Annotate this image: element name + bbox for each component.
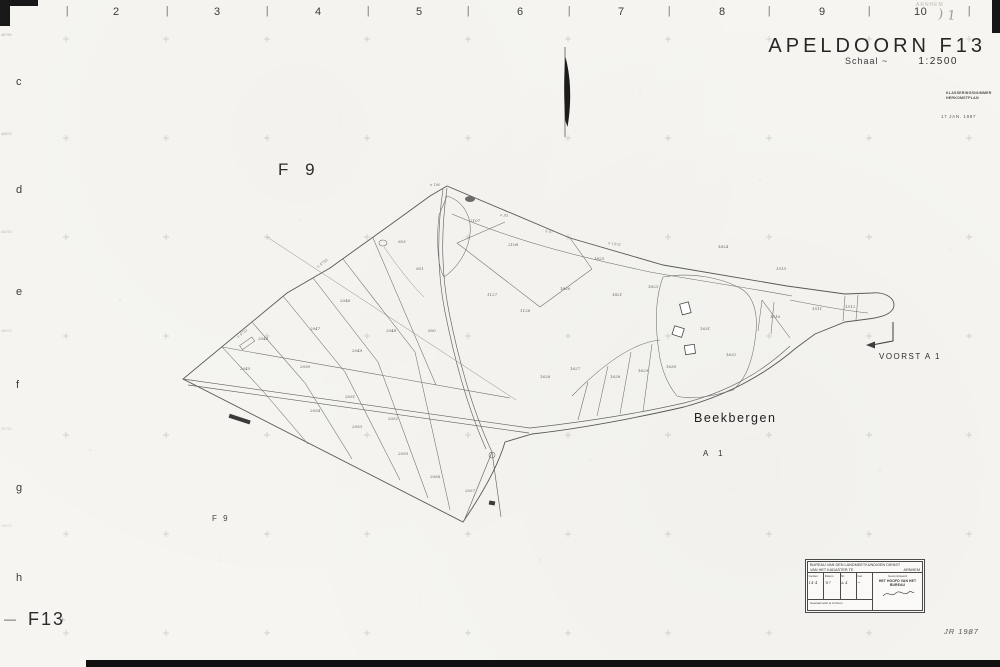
narrow-parcel-symbol [240, 337, 255, 350]
stamp-column-header: Datum [825, 574, 839, 578]
stamp-column-value: 14-4 [809, 580, 823, 585]
parcel-line [457, 243, 540, 307]
grid-cross [966, 432, 972, 438]
road-number: 5 47 [545, 229, 554, 234]
pond-symbol [379, 240, 387, 246]
edge-coordinate: 45500 [1, 524, 12, 528]
grid-cross [665, 135, 671, 141]
grid-cross [565, 432, 571, 438]
parcel-number: 2044 [257, 336, 269, 341]
edge-coordinate: 46750 [1, 33, 12, 37]
grid-cross [465, 333, 471, 339]
parcel-number: 1820 [560, 286, 571, 291]
parcel-number: 1631 [700, 326, 710, 331]
stamp-body: Gezien14-4Datum'87Nr.A 4Get.~ Gewaarmerk… [808, 573, 922, 610]
parcel-number: 2049 [351, 348, 363, 353]
parcel-number: 1628 [610, 374, 621, 379]
grid-cross [465, 531, 471, 537]
parcel-number: 2046 [339, 298, 351, 303]
parcel-number: 1824 [718, 244, 729, 249]
parcel-number: 1515 [776, 266, 787, 271]
grid-cross [163, 135, 169, 141]
classification-stamp: KLASSERINGSNUMMER HERKOMSTPLAN [946, 91, 996, 101]
pencil-annotation: ) 1 [937, 7, 956, 24]
parcel-number: 2055 [397, 451, 409, 456]
stamp-right-title: HET HOOFD VAN HET BUREAU [874, 579, 921, 587]
signature-squiggle [880, 588, 916, 600]
grid-cross [866, 135, 872, 141]
parcel-number: 1127 [487, 292, 498, 297]
grid-cross-layer [63, 36, 972, 636]
grid-cross [565, 531, 571, 537]
grid-cross [465, 36, 471, 42]
edge-coordinate: 46000 [1, 329, 12, 333]
stamp-bottom-note: Gewaarmerkt te Arnhem [808, 599, 872, 610]
grid-letter: f [16, 379, 19, 391]
grid-tick: | [166, 4, 168, 17]
grid-cross [966, 333, 972, 339]
grid-cross [63, 135, 69, 141]
grid-letter: g [16, 482, 22, 494]
panhandle-line [758, 300, 762, 331]
grid-cross [63, 333, 69, 339]
buildings [672, 302, 695, 355]
parcel-number: 953 [398, 239, 406, 244]
parcel-number: 950 [428, 328, 436, 333]
parcel-number: 1511 [812, 306, 822, 311]
parcel-number: 1821 [612, 292, 622, 297]
grid-cross [866, 333, 872, 339]
parcel-line [570, 238, 592, 269]
parcel-number: 2107 [469, 218, 481, 223]
wedge-line [262, 390, 308, 444]
stamp-column-value: ~ [857, 580, 871, 585]
grid-cross [63, 234, 69, 240]
road-number: n 180 [430, 183, 441, 187]
parcel-number: 1510 [770, 314, 781, 319]
stamp-header-line2: VAN HET KADASTER TE [810, 568, 853, 573]
panhandle-line [762, 300, 790, 338]
grid-tick: | [968, 4, 970, 17]
enclosure-outline [656, 275, 756, 398]
stamp-right-header: Gecontroleerd [874, 574, 921, 578]
grid-cross [565, 135, 571, 141]
central-road-line-2 [439, 189, 486, 449]
fan-line [643, 344, 652, 412]
grid-cross [665, 531, 671, 537]
grid-cross [766, 531, 772, 537]
fan-line [597, 366, 608, 416]
building-outline [684, 344, 695, 354]
edge-coordinate: 46250 [1, 230, 12, 234]
parcel-number: 951 [416, 266, 424, 271]
grid-cross [766, 234, 772, 240]
grid-number: 6 [517, 6, 524, 18]
stamp-column: Datum'87 [824, 573, 840, 599]
grid-cross [465, 432, 471, 438]
strip-line [343, 259, 415, 352]
grid-cross [63, 531, 69, 537]
grid-cross [63, 630, 69, 636]
grid-cross [63, 432, 69, 438]
grid-tick: | [568, 4, 570, 17]
strip-line [373, 238, 436, 385]
stamp-column: Get.~ [857, 573, 872, 599]
grid-number: 2 [113, 6, 120, 18]
neighbour-label-voorst: VOORST A 1 [879, 352, 941, 361]
parcel-number: 2053 [351, 424, 363, 429]
place-label-beekbergen: Beekbergen [694, 411, 776, 425]
parcel-number: 2051 [344, 394, 355, 399]
grid-cross [665, 333, 671, 339]
parcel-number: 1512 [845, 304, 856, 309]
grid-cross [364, 135, 370, 141]
grid-number: 9 [819, 6, 826, 18]
grid-cross [665, 432, 671, 438]
teardrop-tail [384, 247, 424, 297]
grid-cross [766, 432, 772, 438]
building-outline [672, 326, 684, 338]
sheet-code-cross: + [60, 615, 65, 625]
grid-cross [264, 135, 270, 141]
adjacent-sheet-label-small: F 9 [212, 514, 230, 523]
stamp-header: BUREAU VAN DEN LANDMEETKUNDIGEN DIENST V… [808, 562, 922, 573]
map-sheet: 9539519501127112618201821182318252107210… [0, 0, 1000, 667]
date-stamp: 17 JAN. 1987 [941, 114, 976, 119]
parcel-number: 2056 [429, 474, 441, 479]
grid-cross [465, 135, 471, 141]
stamp-column-header: Gezien [809, 574, 823, 578]
parcel-number: 1626 [540, 374, 551, 379]
parcel-number: 1825 [594, 256, 605, 261]
strip-line [313, 278, 378, 362]
parcel-number: 1126 [520, 308, 531, 313]
edge-coordinate: 45750 [1, 427, 12, 431]
grid-number: 8 [719, 6, 726, 18]
parcel-number: 1630 [666, 364, 677, 369]
north-arrow-icon [564, 47, 570, 137]
grid-letter: d [16, 184, 22, 196]
grid-cross [866, 531, 872, 537]
grid-number: 10 [914, 6, 927, 18]
grid-number: 4 [315, 6, 322, 18]
grid-cross [665, 36, 671, 42]
grid-number: 5 [416, 6, 423, 18]
sheet-code-dash: — [4, 612, 16, 626]
parcel-number: 1629 [638, 368, 649, 373]
stamp-column: Gezien14-4 [808, 573, 824, 599]
stamp-right: Gecontroleerd HET HOOFD VAN HET BUREAU [873, 573, 922, 610]
edge-coordinate: 46500 [1, 132, 12, 136]
grid-cross [766, 135, 772, 141]
grid-tick: | [467, 4, 469, 17]
grid-cross [364, 36, 370, 42]
stamp-column-value: '87 [825, 580, 839, 585]
road-label-a1: A 1 [703, 449, 727, 458]
grid-cross [966, 234, 972, 240]
grid-cross [565, 333, 571, 339]
upper-road-line [452, 214, 792, 296]
scale-label: Schaal ~ [845, 56, 888, 67]
stamp-left: Gezien14-4Datum'87Nr.A 4Get.~ Gewaarmerk… [808, 573, 873, 610]
grid-cross [364, 333, 370, 339]
grid-cross [163, 630, 169, 636]
parcel-number: 2045 [239, 366, 251, 371]
monument-symbol [465, 196, 475, 202]
central-road-branch [492, 452, 501, 517]
parcel-number: 2054 [309, 408, 321, 413]
road-number-layer: n 1473n 93n 4730n 4731n 1805 47 [236, 183, 621, 339]
grid-tick: | [66, 4, 68, 17]
grid-tick: | [868, 4, 870, 17]
grid-tick: | [768, 4, 770, 17]
grid-cross [665, 630, 671, 636]
parcel-number: 2057 [464, 488, 476, 493]
voorst-arrow-icon [866, 322, 893, 349]
grid-cross [264, 630, 270, 636]
grid-cross [866, 630, 872, 636]
grid-tick: | [367, 4, 369, 17]
parcel-number: 1632 [726, 352, 737, 357]
cadastre-stamp-inner: BUREAU VAN DEN LANDMEETKUNDIGEN DIENST V… [807, 561, 923, 611]
parcel-number: 2108 [507, 242, 519, 247]
grid-cross [63, 36, 69, 42]
stamp-column-header: Get. [857, 574, 871, 578]
small-dark-mark [489, 501, 496, 506]
grid-tick: | [668, 4, 670, 17]
road-number: n 93 [500, 213, 509, 218]
parcel-number: 2052 [387, 416, 399, 421]
grid-cross [163, 36, 169, 42]
parcel-line [457, 222, 505, 243]
grid-letter: e [16, 286, 22, 298]
sheet-title: APELDOORN F13 [768, 35, 986, 58]
grid-cross [966, 531, 972, 537]
fan-line [620, 352, 631, 414]
grid-cross [565, 36, 571, 42]
cadastre-stamp-box: BUREAU VAN DEN LANDMEETKUNDIGEN DIENST V… [805, 559, 925, 613]
road-number: n 1473 [608, 241, 622, 247]
year-note: JR 1987 [944, 627, 979, 636]
grid-number: 7 [618, 6, 625, 18]
parcel-number: 2047 [309, 326, 321, 331]
diagonal-survey-line [267, 237, 516, 400]
panhandle-line [856, 295, 858, 320]
grid-letter: c [16, 76, 22, 88]
grid-cross [264, 432, 270, 438]
scale-row: Schaal ~ 1:2500 [845, 56, 958, 67]
grid-number: 3 [214, 6, 221, 18]
road-number: n 4730 [316, 258, 329, 269]
parcel-number: 1823 [648, 284, 659, 289]
grid-tick: | [266, 4, 268, 17]
map-lines [183, 186, 894, 522]
grid-cross [866, 432, 872, 438]
building-outline [680, 302, 692, 315]
stamp-column-header: Nr. [841, 574, 855, 578]
grid-cross [364, 432, 370, 438]
grid-cross [163, 531, 169, 537]
grid-letter: h [16, 572, 22, 584]
grid-cross [163, 234, 169, 240]
panhandle-axis [790, 300, 868, 313]
grid-cross [364, 531, 370, 537]
map-outer-boundary [183, 186, 894, 522]
grid-cross [766, 630, 772, 636]
strip-line [252, 322, 305, 383]
scan-dust [89, 89, 950, 600]
stamp-column-value: A 4 [841, 580, 855, 585]
grid-cross [866, 234, 872, 240]
grid-cross [163, 432, 169, 438]
stamp-columns: Gezien14-4Datum'87Nr.A 4Get.~ [808, 573, 872, 599]
wedge-line [415, 352, 450, 510]
classification-line2: HERKOMSTPLAN [946, 96, 996, 101]
grid-cross [565, 630, 571, 636]
grid-cross [966, 135, 972, 141]
parcel-number: 2050 [299, 364, 311, 369]
parcel-number: 1627 [570, 366, 581, 371]
central-road-line [443, 188, 492, 521]
stamp-column: Nr.A 4 [841, 573, 857, 599]
grid-cross [364, 630, 370, 636]
parcel-number: 2048 [385, 328, 397, 333]
fan-line [578, 382, 588, 420]
grid-cross [465, 630, 471, 636]
scale-value: 1:2500 [918, 56, 958, 67]
grid-cross [264, 36, 270, 42]
grid-cross [163, 333, 169, 339]
grid-cross [264, 531, 270, 537]
grid-cross [364, 234, 370, 240]
grid-cross [665, 234, 671, 240]
hatched-bar-symbol [229, 414, 251, 425]
adjacent-sheet-label-big: F 9 [278, 160, 321, 180]
stamp-header-city: ARNHEM [904, 568, 920, 573]
